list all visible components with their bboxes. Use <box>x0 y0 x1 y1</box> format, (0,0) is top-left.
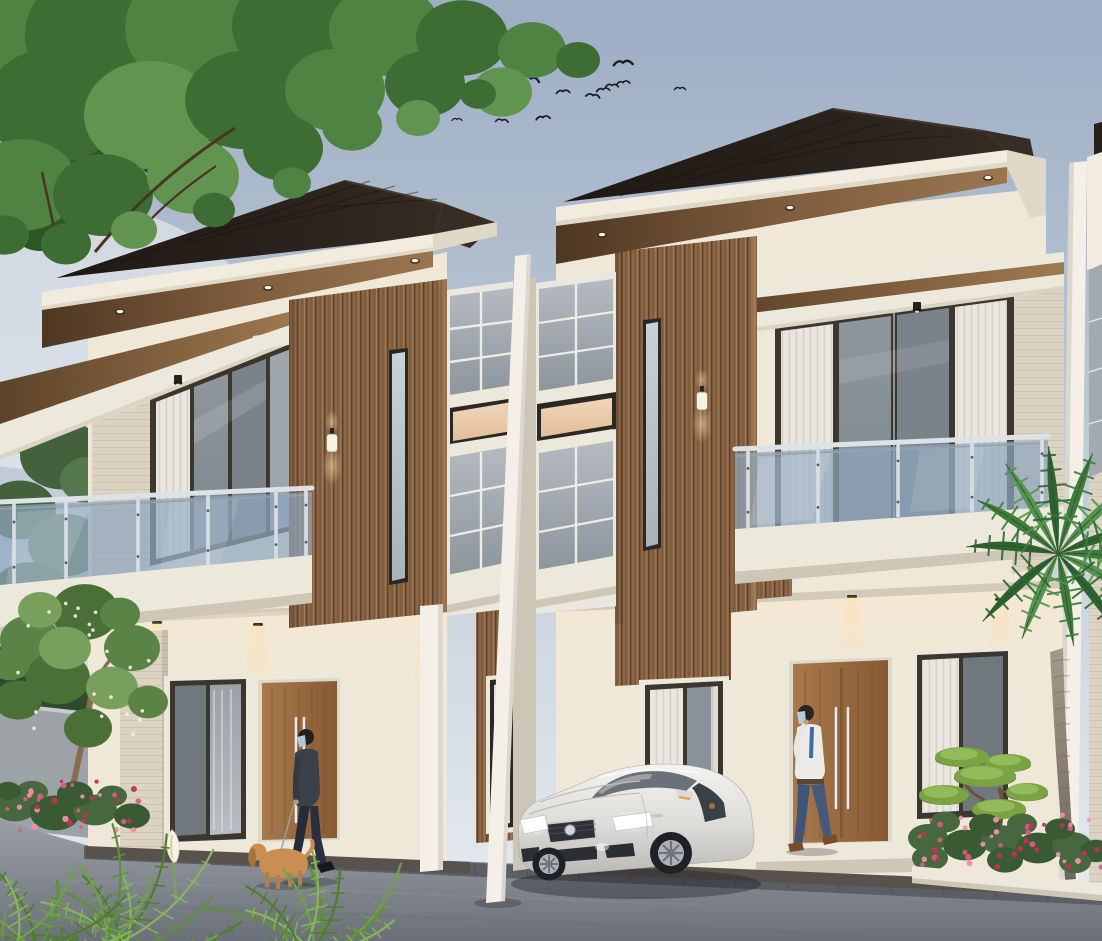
left-ground-window <box>164 674 252 847</box>
architectural-rendering <box>0 0 1102 941</box>
left-canopy-downlight <box>174 375 183 386</box>
scene-canvas <box>0 0 1102 941</box>
right-glass-section <box>536 272 616 614</box>
car-rear-wheel <box>650 832 692 874</box>
visitor-belt <box>797 779 824 784</box>
car-badge <box>565 825 575 835</box>
right-door-step <box>756 841 918 875</box>
left-wood-slat-column <box>289 279 447 628</box>
right-canopy-downlight <box>913 302 922 313</box>
car-front-wheel <box>533 848 566 881</box>
